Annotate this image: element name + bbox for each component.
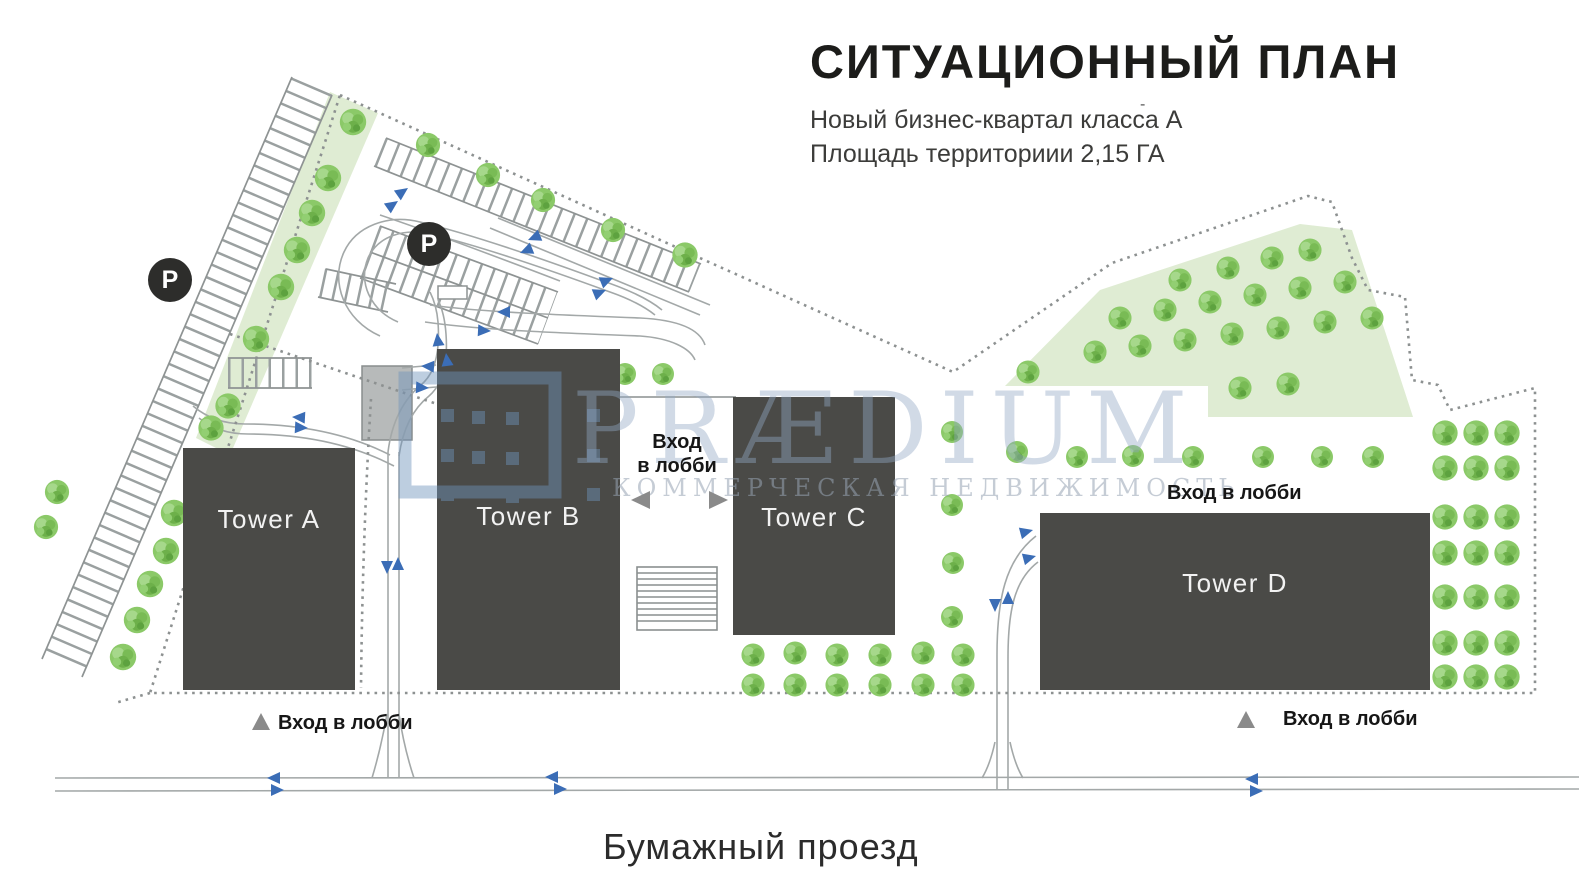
entrance-label-bc-line1: Вход bbox=[612, 430, 742, 454]
tree-icon bbox=[868, 673, 891, 696]
tree-icon bbox=[1463, 630, 1488, 655]
entrance-label-below-a: Вход в лобби bbox=[278, 712, 413, 735]
tree-icon bbox=[1066, 446, 1088, 468]
tree-icon bbox=[1173, 328, 1196, 351]
tree-icon bbox=[741, 673, 764, 696]
parking-badge-letter: P bbox=[162, 266, 179, 295]
tree-icon bbox=[315, 165, 341, 191]
tree-icon bbox=[868, 643, 891, 666]
footnote-mark: - bbox=[1140, 96, 1145, 114]
tree-icon bbox=[340, 109, 366, 135]
tree-icon bbox=[1266, 316, 1289, 339]
tree-icon bbox=[825, 673, 848, 696]
tree-icon bbox=[1463, 420, 1488, 445]
tower-c: Tower C bbox=[733, 397, 895, 635]
tower-b-label: Tower B bbox=[437, 501, 620, 532]
tree-icon bbox=[941, 494, 963, 516]
entrance-label-bc-line2: в лобби bbox=[612, 454, 742, 478]
tree-icon bbox=[1168, 268, 1191, 291]
tree-icon bbox=[1494, 420, 1519, 445]
tree-icon bbox=[911, 673, 934, 696]
tree-icon bbox=[198, 415, 223, 440]
tower-d: Tower D bbox=[1040, 513, 1430, 690]
tree-icon bbox=[1432, 420, 1457, 445]
tree-icon bbox=[1252, 446, 1274, 468]
entrance-label-bottom-right: Вход в лобби bbox=[1283, 708, 1418, 731]
tree-icon bbox=[1432, 504, 1457, 529]
tree-icon bbox=[45, 480, 69, 504]
tree-icon bbox=[1276, 372, 1299, 395]
tree-icon bbox=[243, 326, 269, 352]
tree-icon bbox=[476, 163, 500, 187]
tree-icon bbox=[215, 393, 240, 418]
tree-icon bbox=[1463, 540, 1488, 565]
tree-icon bbox=[951, 643, 974, 666]
parking-row-small-edge bbox=[318, 297, 388, 312]
tower-a-label: Tower A bbox=[183, 504, 355, 535]
subtitle-line-2: Площадь территориии 2,15 ГА bbox=[810, 140, 1165, 169]
tree-icon bbox=[1333, 270, 1356, 293]
tree-icon bbox=[1153, 298, 1176, 321]
tree-icon bbox=[1220, 322, 1243, 345]
entrance-label-bc: Вход в лобби bbox=[612, 430, 742, 478]
tree-icon bbox=[1494, 664, 1519, 689]
tree-icon bbox=[153, 538, 179, 564]
tree-icon bbox=[1360, 306, 1383, 329]
tree-icon bbox=[601, 218, 625, 242]
tree-icon bbox=[110, 644, 136, 670]
tree-icon bbox=[1432, 630, 1457, 655]
tree-icon bbox=[1494, 540, 1519, 565]
tree-icon bbox=[1298, 238, 1321, 261]
tree-icon bbox=[652, 363, 674, 385]
tree-icon bbox=[1494, 630, 1519, 655]
tree-icon bbox=[1198, 290, 1221, 313]
tree-icon bbox=[1494, 584, 1519, 609]
tree-icon bbox=[825, 643, 848, 666]
tree-icon bbox=[1016, 360, 1039, 383]
parking-badge: P bbox=[407, 222, 451, 266]
tree-icon bbox=[1463, 455, 1488, 480]
tree-icon bbox=[124, 607, 150, 633]
street-line bbox=[55, 789, 1579, 791]
entrance-label-d-top: Вход в лобби bbox=[1167, 482, 1302, 505]
boundary-stub bbox=[115, 693, 150, 703]
tree-icon bbox=[1432, 664, 1457, 689]
tree-icon bbox=[1311, 446, 1333, 468]
tree-icon bbox=[783, 641, 806, 664]
tree-icon bbox=[741, 643, 764, 666]
tower-c-label: Tower C bbox=[733, 502, 895, 533]
road-flare bbox=[1010, 742, 1023, 778]
tree-icon bbox=[1313, 310, 1336, 333]
tree-icon bbox=[284, 237, 310, 263]
tree-icon bbox=[1216, 256, 1239, 279]
tree-icon bbox=[942, 552, 964, 574]
tree-icon bbox=[299, 200, 325, 226]
tree-icon bbox=[531, 188, 555, 212]
tree-icon bbox=[1122, 445, 1144, 467]
tower-b: Tower B bbox=[437, 349, 620, 690]
tree-icon bbox=[783, 673, 806, 696]
tree-icon bbox=[1006, 441, 1028, 463]
tree-icon bbox=[1260, 246, 1283, 269]
street-line bbox=[55, 777, 1579, 778]
tree-icon bbox=[1494, 455, 1519, 480]
tree-icon bbox=[1463, 504, 1488, 529]
tree-icon bbox=[268, 274, 294, 300]
tree-icon bbox=[941, 421, 963, 443]
small-structure-outline bbox=[438, 286, 467, 299]
access-road-d bbox=[1008, 562, 1038, 790]
tree-icon bbox=[137, 571, 163, 597]
tree-icon bbox=[1494, 504, 1519, 529]
tower-a: Tower A bbox=[183, 448, 355, 690]
subtitle-line-1: Новый бизнес-квартал класса А bbox=[810, 106, 1182, 135]
tree-icon bbox=[1463, 664, 1488, 689]
green-park bbox=[1005, 224, 1413, 417]
tree-icon bbox=[1432, 455, 1457, 480]
parking-badge-letter: P bbox=[421, 230, 438, 259]
tree-icon bbox=[951, 673, 974, 696]
tree-icon bbox=[416, 133, 440, 157]
access-road-d bbox=[997, 536, 1036, 790]
tree-icon bbox=[1128, 334, 1151, 357]
tree-icon bbox=[1362, 446, 1384, 468]
tree-icon bbox=[1243, 283, 1266, 306]
street-name: Бумажный проезд bbox=[603, 826, 919, 868]
tree-icon bbox=[1083, 340, 1106, 363]
tree-icon bbox=[941, 606, 963, 628]
tree-icon bbox=[1463, 584, 1488, 609]
tree-icon bbox=[1432, 540, 1457, 565]
situational-plan: Tower A Tower B Tower C Tower D PRÆDIUM … bbox=[0, 0, 1579, 883]
tree-icon bbox=[1182, 446, 1204, 468]
tree-icon bbox=[34, 515, 58, 539]
tree-icon bbox=[672, 242, 697, 267]
tree-icon bbox=[1432, 584, 1457, 609]
tree-icon bbox=[911, 641, 934, 664]
road-flare bbox=[982, 742, 995, 778]
tower-d-label: Tower D bbox=[1040, 568, 1430, 599]
tree-icon bbox=[1108, 306, 1131, 329]
tree-icon bbox=[1288, 276, 1311, 299]
parking-badge: P bbox=[148, 258, 192, 302]
page-title: СИТУАЦИОННЫЙ ПЛАН bbox=[810, 34, 1400, 89]
tree-icon bbox=[1228, 376, 1251, 399]
